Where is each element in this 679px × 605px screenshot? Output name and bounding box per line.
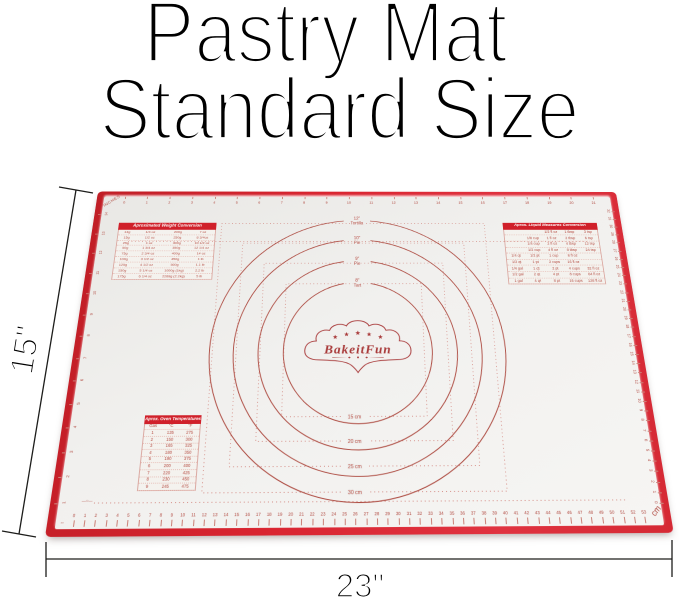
svg-text:BakeitFun: BakeitFun bbox=[323, 343, 392, 357]
svg-text:25 cm: 25 cm bbox=[348, 463, 362, 470]
svg-text:Pie: Pie bbox=[354, 261, 361, 266]
svg-text:20 cm: 20 cm bbox=[348, 438, 362, 444]
svg-text:30 cm: 30 cm bbox=[348, 489, 362, 496]
svg-text:15 cm: 15 cm bbox=[348, 413, 361, 419]
svg-text:Tart: Tart bbox=[354, 282, 363, 287]
svg-text:Tortilla: Tortilla bbox=[351, 220, 365, 225]
svg-text:Pie: Pie bbox=[354, 240, 360, 245]
